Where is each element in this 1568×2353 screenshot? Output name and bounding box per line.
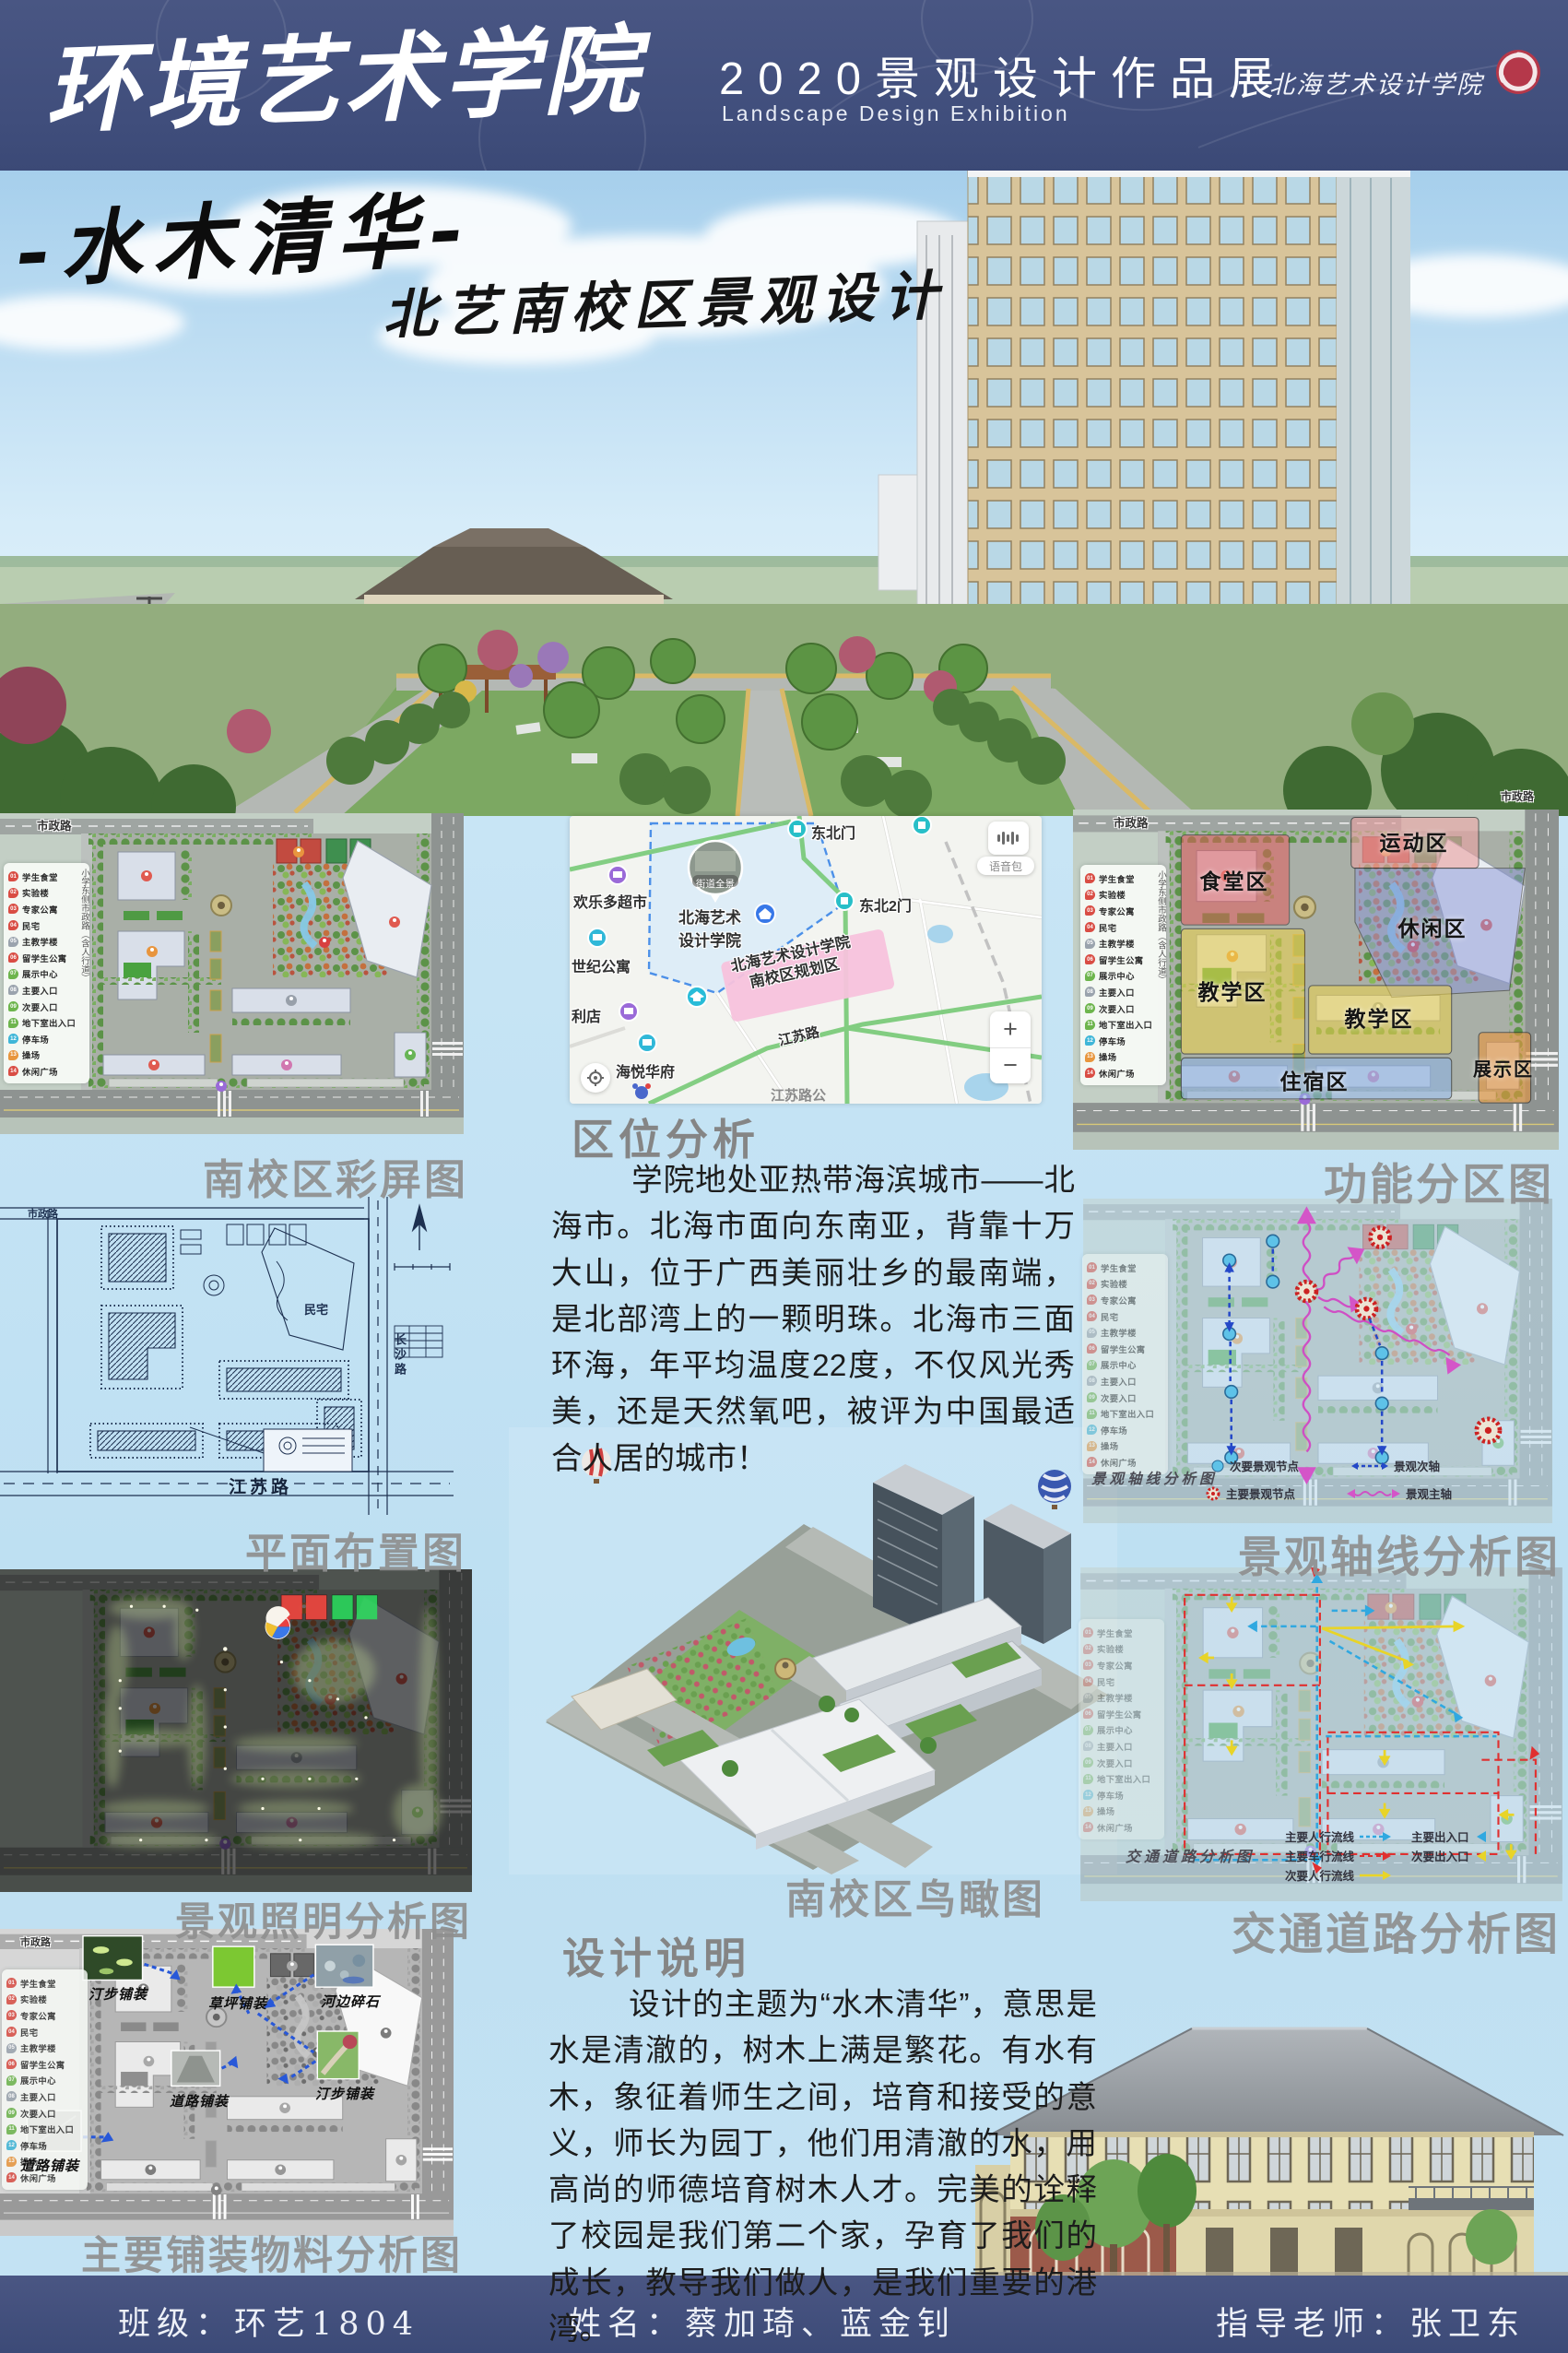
axis-legend-major-axis: 景观主轴 [1347, 1484, 1452, 1502]
legend-pin-icon: 01 [6, 1978, 17, 1988]
birdseye-panel [509, 1427, 1117, 1874]
map-zoom-control: + − [990, 1011, 1031, 1083]
traffic-legend-main-car: 主要车行流线 [1285, 1847, 1391, 1864]
map-voicepack-button[interactable]: 语音包 [977, 857, 1034, 875]
major-axis-icon [1347, 1488, 1400, 1499]
legend-item: 05 主教学楼 [1085, 935, 1162, 952]
legend-pin-icon: 13 [6, 2157, 17, 2167]
traffic-panel: 01 学生食堂 02 实验楼 03 专家公寓 04 民宅 05 主教学楼 06 … [1075, 1567, 1568, 1901]
paving-panel: 市政路 01 学生食堂 02 实验楼 03 专家公寓 04 民宅 05 [0, 1929, 454, 2236]
paving-label-road-a: 道路铺装 [170, 2091, 229, 2111]
legend-item: 01 学生食堂 [6, 1975, 84, 1992]
legend-pin-icon: 13 [1085, 1052, 1095, 1062]
layout-plan-panel: 市政路 民宅 长沙路 江苏路 [0, 1197, 454, 1515]
locate-target-icon [587, 1070, 604, 1086]
paving-label-stone: 河边碎石 [321, 1992, 380, 2011]
legend-pin-icon: 03 [6, 2010, 17, 2020]
map-zoom-in-button[interactable]: + [990, 1011, 1031, 1048]
legend-item: 08 主要入口 [1087, 1373, 1164, 1389]
legend-item: 02 实验楼 [1083, 1641, 1161, 1658]
legend-item: 04 民宅 [1087, 1308, 1164, 1325]
axis-panel: 01 学生食堂 02 实验楼 03 专家公寓 04 民宅 05 主教学楼 06 … [1075, 1199, 1561, 1523]
legend-pin-icon: 08 [8, 985, 18, 995]
axis-legend-major-node: 主要景观节点 [1206, 1484, 1295, 1502]
legend-pin-icon: 14 [6, 2172, 17, 2182]
caption-color-plan: 南校区彩屏图 [203, 1146, 468, 1206]
legend-pin-icon: 05 [1087, 1328, 1097, 1338]
legend-pin-icon: 06 [1087, 1343, 1097, 1354]
legend-item: 12 停车场 [1085, 1033, 1162, 1049]
legend-item: 03 专家公寓 [8, 901, 86, 917]
legend-item: 06 留学生公寓 [1085, 952, 1162, 968]
bp-road-bottom: 江苏路 [229, 1473, 292, 1498]
axis-legend-minor-axis: 景观次轴 [1351, 1457, 1440, 1474]
legend-pin-icon: 06 [6, 2059, 17, 2069]
legend-pin-icon: 06 [8, 952, 18, 963]
map-label-gate-ne2: 东北2门 [859, 893, 912, 916]
zoning-panel: 市政路 小学东侧市政路（含人行道） 01 学生食堂 02 实验楼 03 专家公寓… [1073, 810, 1559, 1150]
legend-pin-icon: 14 [1083, 1822, 1093, 1832]
legend-pin-icon: 13 [1083, 1806, 1093, 1816]
road-label-left: 小学东侧市政路（含人行道） [77, 869, 90, 1081]
minor-ped-icon [1360, 1871, 1391, 1880]
legend-item: 12 停车场 [1083, 1787, 1161, 1803]
legend-item: 02 实验楼 [1085, 887, 1162, 904]
legend-pin-icon: 11 [1085, 1020, 1095, 1030]
legend-pin-icon: 02 [6, 1994, 17, 2004]
legend-item: 01 学生食堂 [1087, 1259, 1164, 1276]
map-locate-button[interactable] [581, 1063, 610, 1093]
legend-item: 03 专家公寓 [1087, 1292, 1164, 1308]
legend-item: 06 留学生公寓 [1083, 1706, 1161, 1722]
main-car-icon [1360, 1851, 1391, 1861]
main-entry-icon [1475, 1831, 1488, 1842]
traffic-legend-minor-entry: 次要出入口 [1411, 1847, 1488, 1864]
legend-item: 07 展示中心 [1087, 1357, 1164, 1374]
legend-item: 09 次要入口 [1083, 1755, 1161, 1771]
legend-item: 01 学生食堂 [1085, 870, 1162, 887]
legend-pin-icon: 04 [1085, 922, 1095, 932]
bp-residence: 民宅 [304, 1300, 328, 1318]
zone-canteen: 食堂区 [1200, 864, 1269, 895]
legend-pin-icon: 12 [8, 1034, 18, 1044]
legend-item: 07 展示中心 [1085, 968, 1162, 985]
legend-item: 08 主要入口 [6, 2088, 84, 2105]
exhibition-subtitle-en: Landscape Design Exhibition [722, 101, 1070, 126]
legend-pin-icon: 03 [1087, 1295, 1097, 1305]
traffic-faded-legend: 01 学生食堂 02 实验楼 03 专家公寓 04 民宅 05 主教学楼 06 … [1079, 1619, 1164, 1839]
poster: 环境艺术学院 2020景观设计作品展 Landscape Design Exhi… [0, 0, 1568, 2353]
design-text: 设计的主题为“水木清华”，意思是水是清澈的，树木上满是繁花。有水有木，象征着师生… [548, 1982, 1097, 2353]
legend-item: 13 操场 [8, 1047, 86, 1064]
legend-pin-icon: 07 [6, 2075, 17, 2086]
traffic-legend-main-entry: 主要出入口 [1411, 1827, 1488, 1845]
legend-pin-icon: 05 [1085, 939, 1095, 949]
birdseye-illustration [509, 1427, 1117, 1874]
legend-item: 07 展示中心 [6, 2073, 84, 2089]
design-heading: 设计说明 [562, 1925, 750, 1986]
institute-logo-swirl-icon [1494, 48, 1542, 96]
legend-pin-icon: 05 [1083, 1693, 1093, 1703]
legend-item: 06 留学生公寓 [8, 950, 86, 966]
legend-pin-icon: 01 [1085, 873, 1095, 883]
legend-pin-icon: 04 [6, 2027, 17, 2037]
header-bar: 环境艺术学院 2020景观设计作品展 Landscape Design Exhi… [0, 0, 1568, 171]
institute-logo-text: 北海艺术设计学院 [1269, 65, 1483, 101]
legend-pin-icon: 02 [1087, 1279, 1097, 1289]
major-node-icon [1206, 1486, 1220, 1501]
legend-pin-icon: 08 [1083, 1741, 1093, 1751]
legend-item: 08 主要入口 [1085, 984, 1162, 1000]
legend-pin-icon: 04 [1083, 1676, 1093, 1686]
legend-item: 08 主要入口 [1083, 1738, 1161, 1755]
map-label-residence: 海悦华府 [616, 1059, 675, 1082]
zone-dorm: 住宿区 [1280, 1064, 1350, 1095]
legend-item: 11 地下室出入口 [1083, 1770, 1161, 1787]
legend-item: 11 地下室出入口 [8, 1014, 86, 1031]
legend-pin-icon: 08 [1087, 1376, 1097, 1386]
legend-item: 12 停车场 [6, 2137, 84, 2154]
legend-item: 04 民宅 [6, 2024, 84, 2040]
location-text: 学院地处亚热带海滨城市——北海市。北海市面向东南亚，背靠十万大山，位于广西美丽壮… [551, 1158, 1075, 1483]
legend-pin-icon: 13 [1087, 1441, 1097, 1451]
legend-pin-icon: 05 [8, 937, 18, 947]
legend-pin-icon: 11 [8, 1018, 18, 1028]
legend-item: 14 休闲广场 [1085, 1065, 1162, 1082]
exhibition-title: 2020景观设计作品展 [719, 42, 1288, 108]
legend-pin-icon: 09 [6, 2108, 17, 2118]
traffic-legend-minor-ped: 次要人行流线 [1285, 1866, 1391, 1884]
zoning-road-top: 市政路 [1114, 813, 1149, 831]
legend-pin-icon: 14 [1087, 1457, 1097, 1467]
map-label-store: 利店 [572, 1004, 601, 1026]
lighting-illustration [0, 1569, 472, 1892]
legend-item: 13 操场 [1083, 1803, 1161, 1820]
location-map-panel: 东北门 东北2门 欢乐多超市 世纪公寓 利店 海悦华府 北海艺术设计学院 北海艺… [570, 816, 1042, 1104]
legend-pin-icon: 11 [6, 2124, 17, 2134]
legend-pin-icon: 01 [1087, 1262, 1097, 1272]
legend-item: 09 次要入口 [6, 2105, 84, 2122]
axis-inner-caption: 景观轴线分析图 [1091, 1468, 1218, 1488]
legend-item: 05 主教学楼 [1083, 1689, 1161, 1706]
legend-item: 05 主教学楼 [6, 2040, 84, 2056]
legend-item: 09 次要入口 [8, 999, 86, 1015]
legend-item: 04 民宅 [8, 917, 86, 934]
legend-item: 11 地下室出入口 [1087, 1405, 1164, 1422]
legend-item: 12 停车场 [1087, 1422, 1164, 1438]
legend-pin-icon: 11 [1083, 1774, 1093, 1784]
legend-item: 09 次要入口 [1085, 1000, 1162, 1017]
paving-label-stepping-b: 汀步铺装 [315, 2084, 374, 2103]
legend-pin-icon: 03 [1083, 1660, 1093, 1670]
legend-item: 05 主教学楼 [8, 933, 86, 950]
legend-pin-icon: 12 [1085, 1035, 1095, 1046]
minor-node-icon [1211, 1460, 1224, 1472]
legend-pin-icon: 07 [1083, 1725, 1093, 1735]
legend-pin-icon: 12 [1083, 1790, 1093, 1800]
legend-item: 03 专家公寓 [6, 2007, 84, 2024]
legend-item: 13 操场 [1087, 1438, 1164, 1455]
legend-pin-icon: 08 [1085, 987, 1095, 997]
legend-item: 01 学生食堂 [8, 869, 86, 885]
caption-traffic: 交通道路分析图 [1232, 1898, 1561, 1962]
map-zoom-out-button[interactable]: − [990, 1048, 1031, 1084]
legend-item: 01 学生食堂 [1083, 1625, 1161, 1641]
paving-label-road-b: 道路铺装 [20, 2156, 79, 2175]
legend-item: 02 实验楼 [8, 885, 86, 902]
school-title: 环境艺术学院 [42, 0, 644, 151]
map-label-bus-stop: 江苏路公 [771, 1085, 826, 1104]
legend-item: 06 留学生公寓 [6, 2056, 84, 2073]
zone-teaching-a: 教学区 [1198, 975, 1267, 1006]
legend-pin-icon: 02 [1085, 890, 1095, 900]
legend-item: 04 民宅 [1085, 919, 1162, 936]
zone-sports: 运动区 [1380, 825, 1449, 857]
lighting-panel [0, 1569, 472, 1892]
legend-item: 03 专家公寓 [1083, 1657, 1161, 1673]
legend-item: 02 实验楼 [6, 1992, 84, 2008]
main-ped-icon [1360, 1832, 1391, 1841]
legend-pin-icon: 14 [1085, 1068, 1095, 1078]
legend-pin-icon: 02 [8, 888, 18, 898]
legend-pin-icon: 13 [8, 1050, 18, 1060]
legend-item: 06 留学生公寓 [1087, 1341, 1164, 1357]
minor-axis-icon [1351, 1461, 1388, 1471]
legend-pin-icon: 14 [8, 1066, 18, 1076]
legend-pin-icon: 09 [1083, 1757, 1093, 1768]
caption-paving: 主要铺装物料分析图 [81, 2224, 463, 2281]
legend-item: 07 展示中心 [8, 966, 86, 983]
legend-pin-icon: 11 [1087, 1409, 1097, 1419]
legend-pin-icon: 06 [1083, 1709, 1093, 1719]
legend-pin-icon: 07 [8, 969, 18, 979]
legend-pin-icon: 07 [1087, 1360, 1097, 1370]
legend-pin-icon: 12 [1087, 1425, 1097, 1435]
road-label-top: 市政路 [37, 816, 72, 834]
map-voicepack-icon-button[interactable] [988, 822, 1029, 855]
color-plan-panel: 市政路 小学东侧市政路（含人行道） 01 学生食堂 02 实验楼 03 专家公寓… [0, 813, 464, 1134]
legend-pin-icon: 06 [1085, 954, 1095, 964]
legend-pin-icon: 09 [1087, 1392, 1097, 1402]
legend-item: 14 休闲广场 [8, 1063, 86, 1080]
map-label-gate-ne: 东北门 [811, 821, 855, 843]
caption-lighting: 景观照明分析图 [175, 1890, 472, 1947]
legend-pin-icon: 09 [1085, 1003, 1095, 1013]
map-photo-label: 街道全景 [693, 877, 737, 891]
legend-item: 12 停车场 [8, 1031, 86, 1047]
legend-pin-icon: 01 [1083, 1627, 1093, 1638]
legend-pin-icon: 01 [8, 871, 18, 881]
legend-item: 03 专家公寓 [1085, 903, 1162, 919]
caption-layout-plan: 平面布置图 [245, 1519, 466, 1579]
zoning-road-left: 小学东侧市政路（含人行道） [1154, 870, 1167, 1082]
legend-item: 07 展示中心 [1083, 1722, 1161, 1739]
paving-label-lawn: 草坪铺装 [208, 1993, 267, 2013]
legend-item: 09 次要入口 [1087, 1389, 1164, 1406]
map-label-apartment: 世纪公寓 [572, 954, 631, 976]
legend-item: 14 休闲广场 [1083, 1819, 1161, 1836]
paving-label-stepping-a: 汀步铺装 [88, 1984, 147, 2004]
axis-legend-minor-node: 次要景观节点 [1211, 1457, 1299, 1474]
caption-zoning: 功能分区图 [1324, 1149, 1554, 1212]
minor-entry-icon [1475, 1850, 1488, 1862]
caption-birdseye: 南校区鸟瞰图 [785, 1866, 1045, 1925]
legend-item: 11 地下室出入口 [6, 2121, 84, 2137]
legend-pin-icon: 12 [6, 2140, 17, 2150]
legend-pin-icon: 09 [8, 1001, 18, 1011]
legend-item: 04 民宅 [1083, 1673, 1161, 1690]
legend-pin-icon: 08 [6, 2091, 17, 2101]
map-label-college: 北海艺术设计学院 [678, 905, 741, 951]
bp-road-top: 市政路 [28, 1206, 58, 1221]
legend-item: 05 主教学楼 [1087, 1324, 1164, 1341]
bp-road-right: 长沙路 [391, 1333, 408, 1378]
caption-axis: 景观轴线分析图 [1238, 1521, 1561, 1585]
legend-item: 11 地下室出入口 [1085, 1016, 1162, 1033]
legend-pin-icon: 02 [1083, 1644, 1093, 1654]
legend-pin-icon: 03 [8, 904, 18, 914]
zone-teaching-b: 教学区 [1345, 1001, 1414, 1033]
legend-item: 13 操场 [1085, 1049, 1162, 1066]
footer-class: 班级：环艺1804 [118, 2298, 419, 2345]
axis-faded-legend: 01 学生食堂 02 实验楼 03 专家公寓 04 民宅 05 主教学楼 06 … [1082, 1254, 1168, 1474]
legend-item: 02 实验楼 [1087, 1276, 1164, 1293]
zone-leisure: 休闲区 [1398, 911, 1468, 942]
paving-road-top: 市政路 [20, 1934, 51, 1949]
layout-plan-illustration [0, 1197, 454, 1515]
legend-item: 08 主要入口 [8, 982, 86, 999]
road-label-top-right: 市政路 [1501, 788, 1534, 804]
legend-pin-icon: 07 [1085, 971, 1095, 981]
legend-pin-icon: 04 [8, 920, 18, 930]
voice-grid-icon [997, 831, 1020, 845]
legend-pin-icon: 05 [6, 2043, 17, 2053]
traffic-inner-caption: 交通道路分析图 [1126, 1844, 1255, 1866]
map-label-supermarket: 欢乐多超市 [573, 890, 647, 912]
legend-pin-icon: 03 [1085, 905, 1095, 916]
traffic-legend-main-ped: 主要人行流线 [1285, 1827, 1391, 1845]
footer-teacher: 指导老师：张卫东 [1216, 2298, 1526, 2345]
zone-exhibition: 展示区 [1473, 1055, 1534, 1082]
legend-pin-icon: 04 [1087, 1311, 1097, 1321]
